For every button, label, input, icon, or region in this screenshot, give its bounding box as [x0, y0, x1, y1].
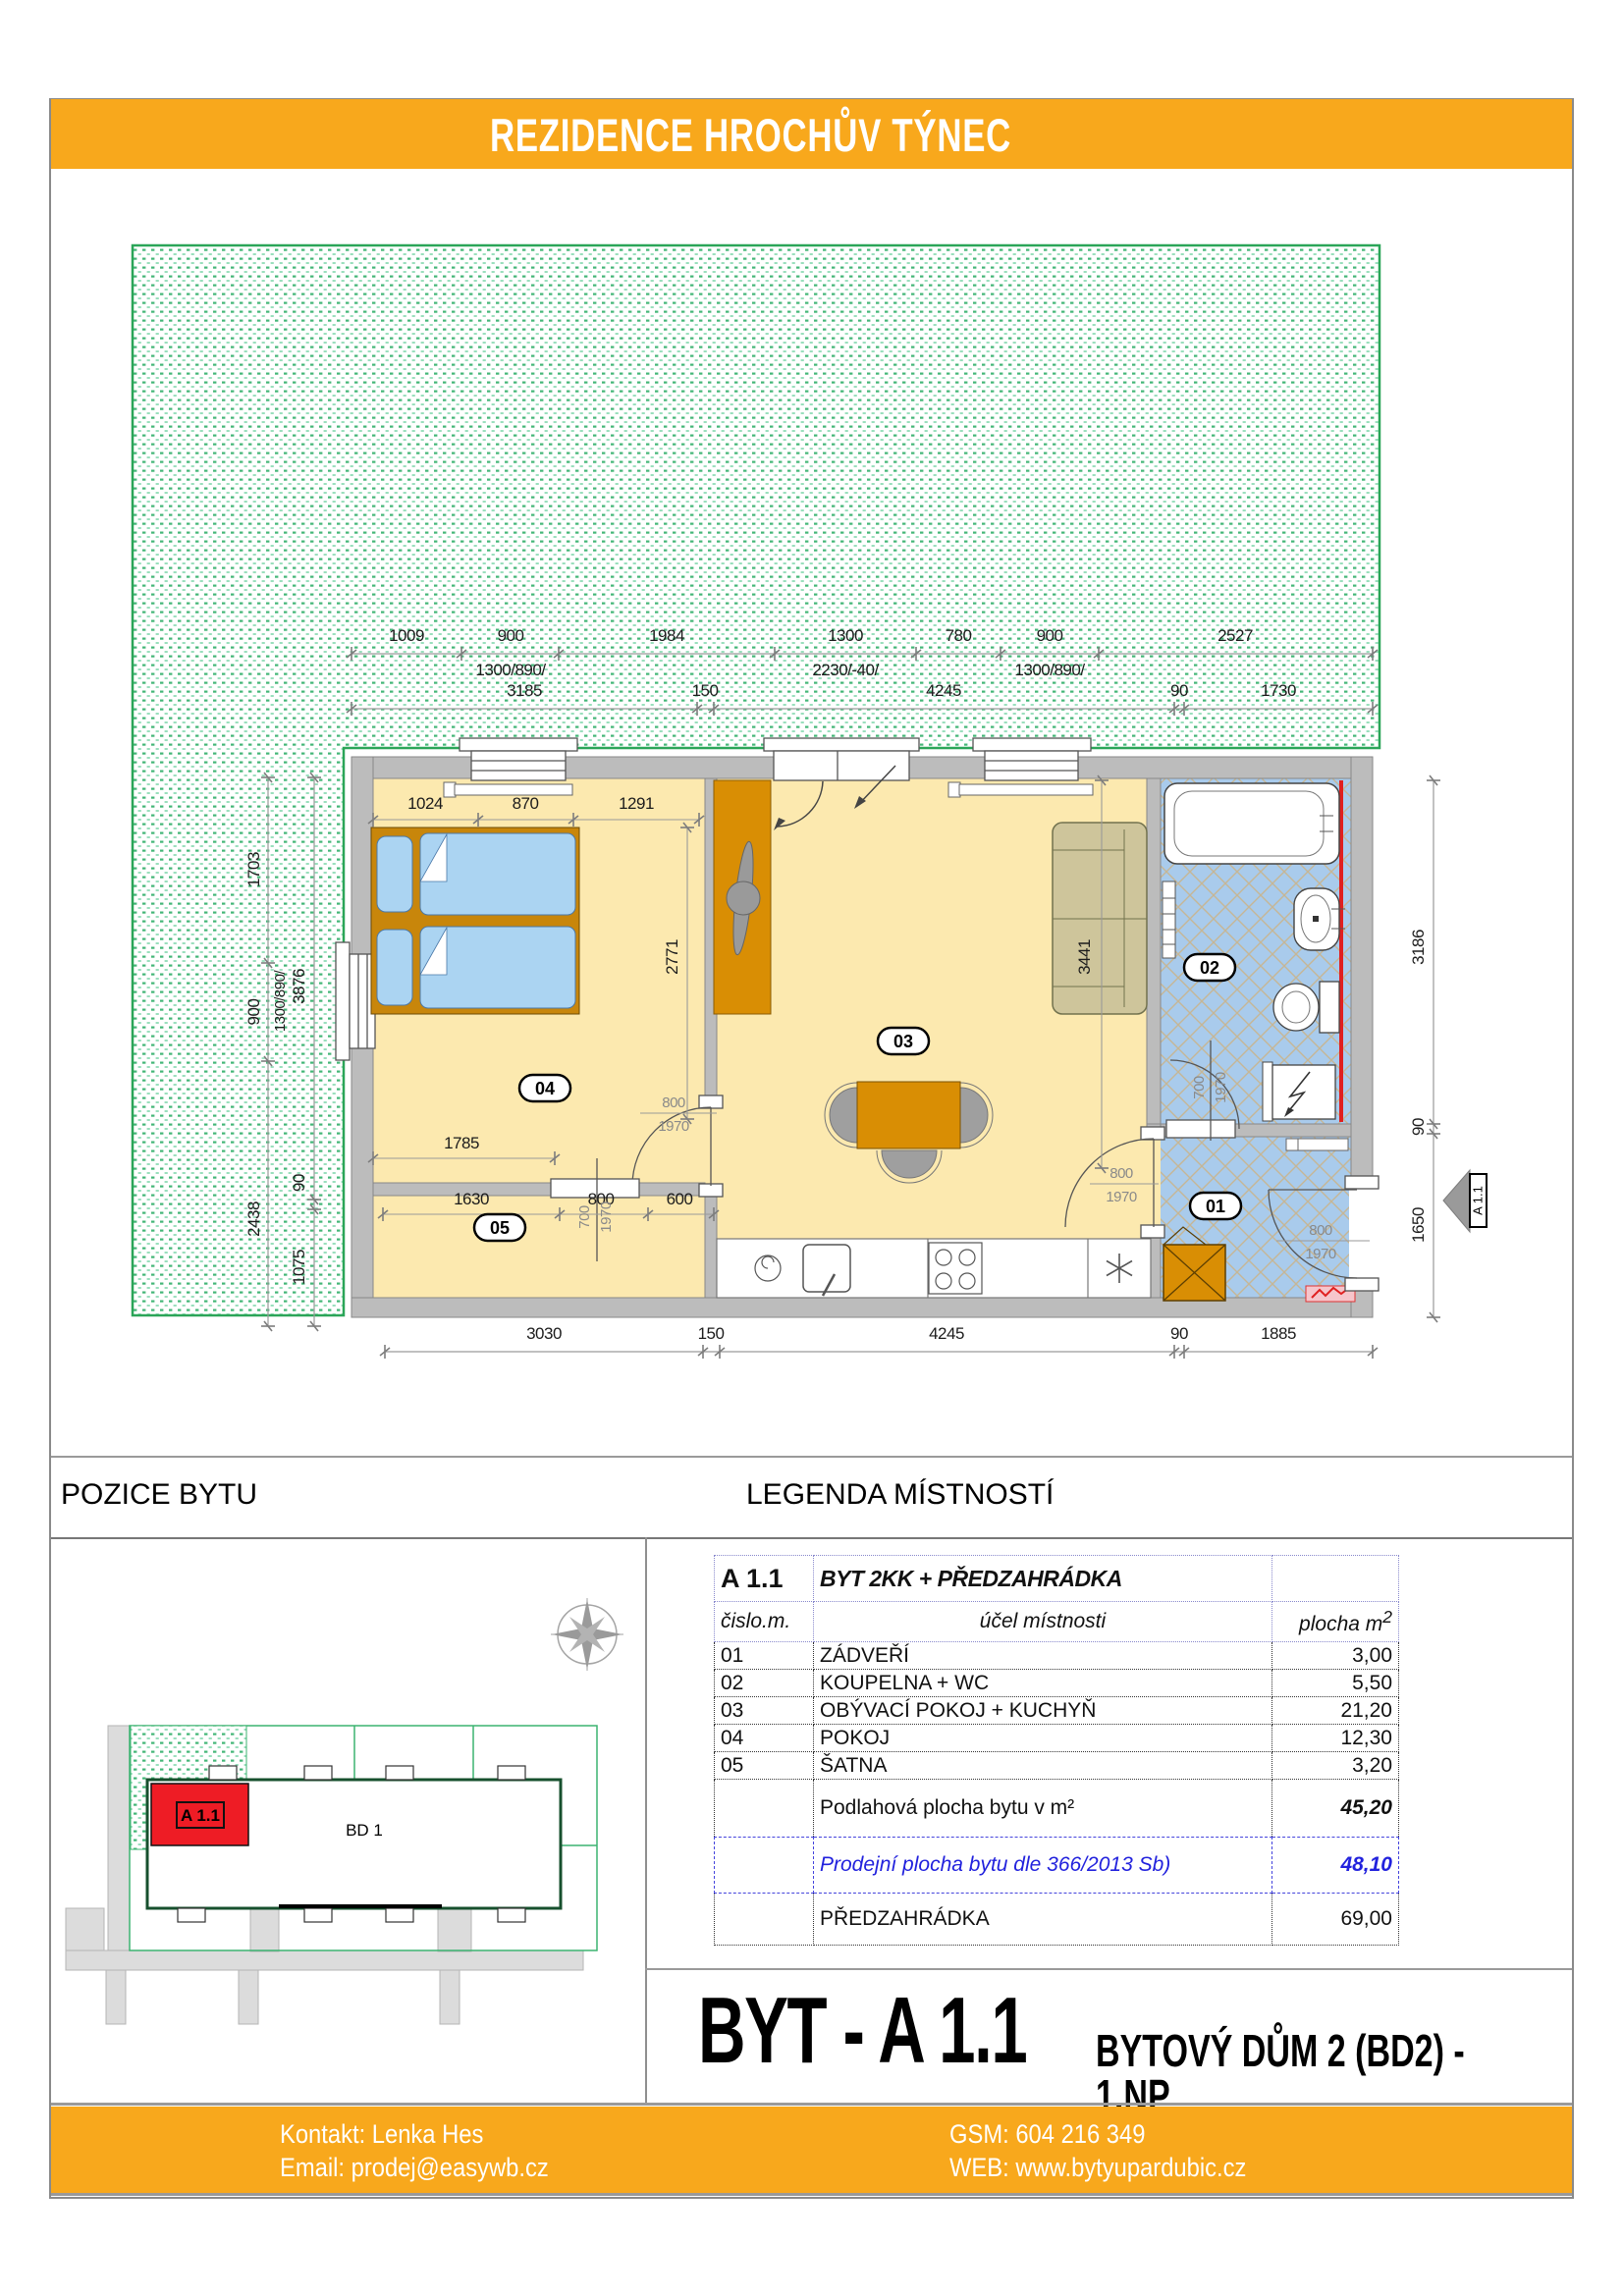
summary-name: Prodejní plocha bytu dle 366/2013 Sb) — [814, 1838, 1272, 1894]
room-area: 21,20 — [1272, 1697, 1399, 1725]
summary-area: 69,00 — [1272, 1894, 1399, 1946]
col-header-number: čislo.m. — [715, 1602, 814, 1642]
table-header-row: čislo.m. účel místnosti plocha m2 — [715, 1602, 1399, 1642]
table-row: 05 ŠATNA 3,20 — [715, 1752, 1399, 1780]
room-name: OBÝVACÍ POKOJ + KUCHYŇ — [814, 1697, 1272, 1725]
table-row-summary: Podlahová plocha bytu v m² 45,20 — [715, 1780, 1399, 1838]
room-number: 01 — [715, 1642, 814, 1670]
unit-code: A 1.1 — [715, 1556, 814, 1602]
room-name: ZÁDVEŘÍ — [814, 1642, 1272, 1670]
table-row: 02 KOUPELNA + WC 5,50 — [715, 1670, 1399, 1697]
room-name: POKOJ — [814, 1725, 1272, 1752]
table-row-unit: A 1.1 BYT 2KK + PŘEDZAHRÁDKA — [715, 1556, 1399, 1602]
legend-section-title: LEGENDA MÍSTNOSTÍ — [746, 1478, 1054, 1512]
table-row-summary: Prodejní plocha bytu dle 366/2013 Sb) 48… — [715, 1838, 1399, 1894]
footer-gsm: GSM: 604 216 349 — [949, 2118, 1145, 2150]
page: REZIDENCE HROCHŮV TÝNEC — [0, 0, 1623, 2296]
room-area: 3,00 — [1272, 1642, 1399, 1670]
col-header-area: plocha m2 — [1272, 1602, 1399, 1642]
summary-name: PŘEDZAHRÁDKA — [814, 1894, 1272, 1946]
section-divider-top — [51, 1456, 1572, 1458]
summary-name: Podlahová plocha bytu v m² — [814, 1780, 1272, 1838]
footer-rule-top — [51, 2103, 1572, 2106]
room-name: KOUPELNA + WC — [814, 1670, 1272, 1697]
summary-area: 45,20 — [1272, 1780, 1399, 1838]
footer-contact: Kontakt: Lenka Hes — [280, 2118, 483, 2150]
unit-title: BYT - A 1.1 — [698, 1984, 1026, 2078]
table-row: 04 POKOJ 12,30 — [715, 1725, 1399, 1752]
summary-area: 48,10 — [1272, 1838, 1399, 1894]
unit-type: BYT 2KK + PŘEDZAHRÁDKA — [814, 1556, 1272, 1602]
room-area: 5,50 — [1272, 1670, 1399, 1697]
footer-web: WEB: www.bytyupardubic.cz — [949, 2152, 1246, 2183]
page-title: REZIDENCE HROCHŮV TÝNEC — [150, 108, 1351, 162]
room-name: ŠATNA — [814, 1752, 1272, 1780]
footer-rule-bottom — [51, 2193, 1572, 2196]
section-divider-vertical — [645, 1537, 647, 2105]
room-area: 12,30 — [1272, 1725, 1399, 1752]
position-section-title: POZICE BYTU — [61, 1478, 257, 1512]
table-row: 03 OBÝVACÍ POKOJ + KUCHYŇ 21,20 — [715, 1697, 1399, 1725]
room-number: 02 — [715, 1670, 814, 1697]
table-row-summary: PŘEDZAHRÁDKA 69,00 — [715, 1894, 1399, 1946]
heading-rule — [51, 1537, 1572, 1539]
col-header-purpose: účel místnosti — [814, 1602, 1272, 1642]
table-row: 01 ZÁDVEŘÍ 3,00 — [715, 1642, 1399, 1670]
room-area: 3,20 — [1272, 1752, 1399, 1780]
room-number: 05 — [715, 1752, 814, 1780]
footer-email: Email: prodej@easywb.cz — [280, 2152, 549, 2183]
title-band-rule — [645, 1968, 1572, 1970]
room-number: 03 — [715, 1697, 814, 1725]
room-number: 04 — [715, 1725, 814, 1752]
legend-table: A 1.1 BYT 2KK + PŘEDZAHRÁDKA čislo.m. úč… — [714, 1555, 1399, 1946]
